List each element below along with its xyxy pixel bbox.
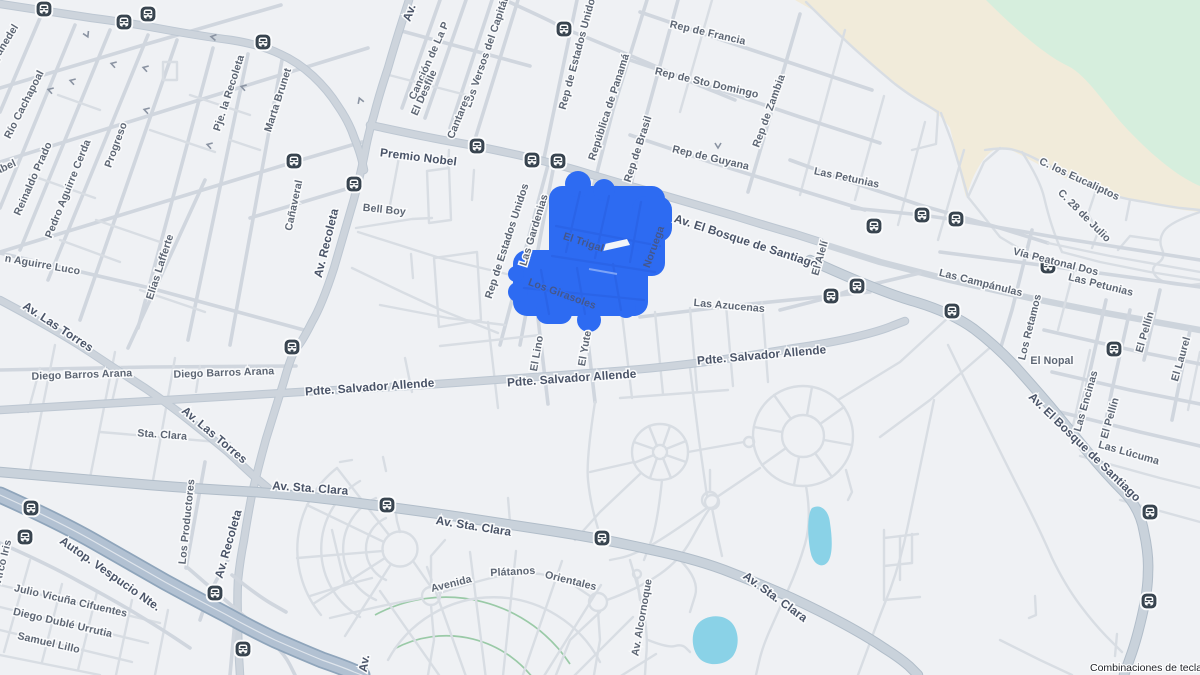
svg-text:El Nopal: El Nopal bbox=[1030, 355, 1073, 367]
svg-text:Plátanos: Plátanos bbox=[490, 565, 536, 579]
svg-text:Av.: Av. bbox=[356, 654, 373, 674]
svg-text:Combinaciones de tecla: Combinaciones de tecla bbox=[1090, 662, 1200, 674]
